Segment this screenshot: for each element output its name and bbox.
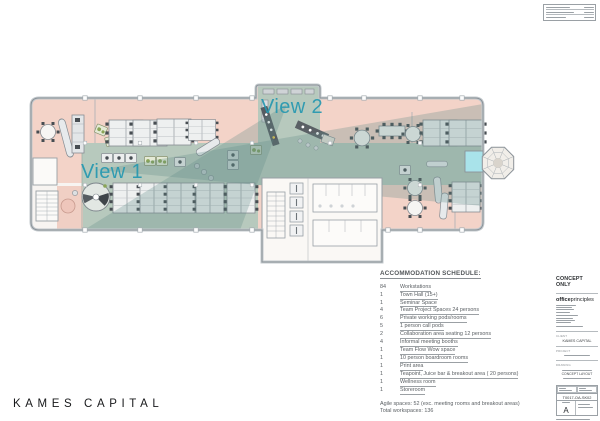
schedule-item: 2Collaboration area seating 12 persons xyxy=(380,331,562,339)
schedule-item-qty: 1 xyxy=(380,371,400,379)
schedule-item: 1Wellness room xyxy=(380,379,562,387)
schedule-item-qty: 1 xyxy=(380,292,400,300)
drawing-section: DRAWING CONCEPT LAYOUT xyxy=(556,360,598,383)
schedule-item-desc: Seminar Space xyxy=(400,300,437,308)
wellness-seat xyxy=(61,199,75,213)
schedule-item: 6Private working pods/rooms xyxy=(380,315,562,323)
schedule-item-desc: Storeroom xyxy=(400,387,425,395)
schedule-item-qty: 1 xyxy=(380,347,400,355)
schedule-item-desc: Team Project Spaces 24 persons xyxy=(400,307,479,315)
schedule-item-qty: 4 xyxy=(380,307,400,315)
drawing-title-line xyxy=(562,370,592,371)
locker-cabinets xyxy=(72,115,84,153)
view-2-label: View 2 xyxy=(261,96,323,119)
schedule-item: 1Town Hall (15+) xyxy=(380,292,562,300)
revision-strip xyxy=(543,4,596,21)
concept-only-stamp: CONCEPT ONLY xyxy=(556,276,598,288)
schedule-title: ACCOMMODATION SCHEDULE: xyxy=(380,270,481,279)
town-hall-table xyxy=(82,183,110,211)
schedule-item-desc: 1 person call pods xyxy=(400,323,444,331)
revision-letter: A xyxy=(557,404,575,417)
schedule-item-qty: 6 xyxy=(380,315,400,323)
drawing-label: DRAWING xyxy=(556,363,598,367)
octagon-tower xyxy=(482,147,513,178)
schedule-item: 84Workstations xyxy=(380,284,562,292)
schedule-item-desc: Workstations xyxy=(400,284,431,292)
revision-cell: A xyxy=(557,401,576,415)
notes-cell xyxy=(576,401,597,415)
website-line xyxy=(556,326,583,327)
schedule-item-desc: Wellness room xyxy=(400,379,436,387)
view-1-label: View 1 xyxy=(81,161,143,184)
footer-line xyxy=(556,419,590,420)
schedule-item: 1Team Flow Wow space xyxy=(380,347,562,355)
schedule-summary-agile: Agile spaces: 52 (exc. meeting rooms and… xyxy=(380,401,562,408)
address-lines xyxy=(556,305,598,312)
office-principles-logo: officeprinciples xyxy=(556,293,598,303)
schedule-item-qty: 4 xyxy=(380,339,400,347)
contact-lines xyxy=(556,315,598,322)
revision-row-block: A xyxy=(556,401,598,416)
schedule-items: 84Workstations1Town Hall (15+)1Seminar S… xyxy=(380,284,562,395)
central-core xyxy=(262,178,382,262)
schedule-item-qty: 1 xyxy=(380,379,400,387)
schedule-item-qty: 1 xyxy=(380,387,400,395)
title-block: CONCEPT ONLY officeprinciples CLIENT KAM… xyxy=(556,276,598,421)
desk-cluster xyxy=(186,120,219,141)
schedule-item: 1Teapoint, Juice bar & breakout area ( 2… xyxy=(380,371,562,379)
schedule-item: 51 person call pods xyxy=(380,323,562,331)
cyan-room xyxy=(465,151,483,172)
schedule-item-desc: Private working pods/rooms xyxy=(400,315,467,323)
schedule-item-qty: 84 xyxy=(380,284,400,292)
schedule-item-desc: Informal meeting booths xyxy=(400,339,458,347)
schedule-item-desc: Town Hall (15+) xyxy=(400,292,438,300)
client-value: KAMES CAPITAL xyxy=(556,339,598,343)
project-section: PROJECT xyxy=(556,346,598,361)
schedule-item-desc: Team Flow Wow space xyxy=(400,347,455,355)
schedule-item-desc: 10 person boardroom rooms xyxy=(400,355,468,363)
schedule-item: 4Team Project Spaces 24 persons xyxy=(380,307,562,315)
client-label: CLIENT xyxy=(556,334,598,338)
schedule-item-qty: 5 xyxy=(380,323,400,331)
schedule-item: 110 person boardroom rooms xyxy=(380,355,562,363)
revision-row xyxy=(546,15,594,20)
drawing-title: CONCEPT LAYOUT xyxy=(556,372,598,376)
schedule-item-qty: 1 xyxy=(380,355,400,363)
drawing-number: T0017-OA-SK02 xyxy=(556,394,598,402)
schedule-item: 1Print area xyxy=(380,363,562,371)
drawing-title-line xyxy=(563,378,591,379)
date-scale-table xyxy=(556,385,598,394)
project-label: PROJECT xyxy=(556,349,598,353)
schedule-item-qty: 2 xyxy=(380,331,400,339)
project-value-line xyxy=(564,355,590,356)
schedule-item: 4Informal meeting booths xyxy=(380,339,562,347)
schedule-item-qty: 1 xyxy=(380,300,400,308)
date-cell xyxy=(557,386,577,393)
accommodation-schedule: ACCOMMODATION SCHEDULE: 84Workstations1T… xyxy=(380,262,562,415)
schedule-summary-total: Total workspaces: 136 xyxy=(380,408,562,415)
schedule-item-qty: 1 xyxy=(380,363,400,371)
schedule-item: 1Storeroom xyxy=(380,387,562,395)
kames-capital-logo: KAMES CAPITAL xyxy=(13,398,163,410)
schedule-item: 1Seminar Space xyxy=(380,300,562,308)
client-section: CLIENT KAMES CAPITAL xyxy=(556,331,598,346)
pouf xyxy=(72,190,77,195)
schedule-item-desc: Teapoint, Juice bar & breakout area ( 20… xyxy=(400,371,518,379)
schedule-item-desc: Print area xyxy=(400,363,423,371)
scale-cell xyxy=(577,386,597,393)
schedule-item-desc: Collaboration area seating 12 persons xyxy=(400,331,491,339)
